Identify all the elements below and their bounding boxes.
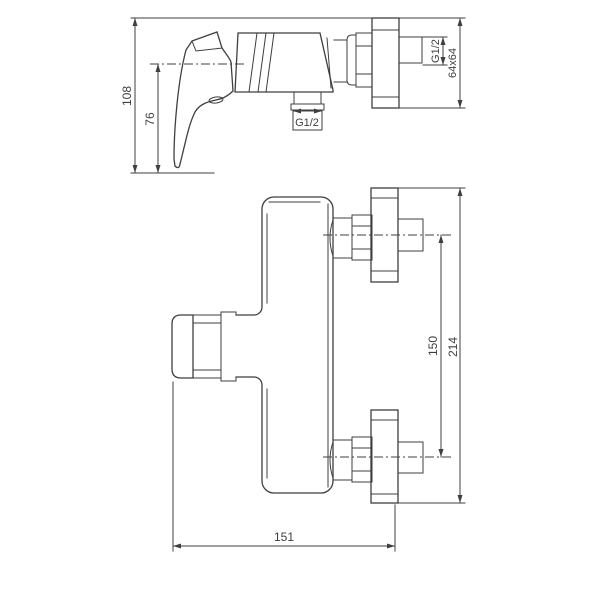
side-union-stub	[334, 40, 347, 82]
dim-76-arrow-up	[156, 64, 161, 72]
dim-150-arrow-up	[439, 235, 444, 243]
outlet-thread-arrow-right	[314, 109, 322, 114]
bottom-outlet-stub	[294, 92, 321, 104]
dim-108-arrow-up	[133, 18, 138, 26]
handle-grip-bevel	[192, 41, 222, 51]
dim-151-label: 151	[274, 530, 294, 544]
top-union-nut	[333, 218, 352, 258]
dim-108: 108	[120, 18, 465, 173]
dim-214-arrow-up	[458, 188, 463, 196]
side-wall-connection	[334, 18, 422, 108]
front-handle-cap	[172, 315, 193, 378]
nipple-thread-label: G1/2	[430, 39, 442, 63]
body-surface-edges	[249, 33, 331, 92]
side-union-cap	[347, 35, 356, 85]
top-hex-nut	[352, 215, 372, 260]
side-wall-flange	[372, 18, 399, 108]
dim-outlet-thread: G1/2	[293, 109, 322, 131]
side-body	[235, 33, 333, 110]
shower-mixer-drawing: 108 76 G1/2 G1/2	[0, 0, 600, 600]
front-bottom-connection	[323, 410, 452, 503]
flange-size-label: 64x64	[447, 48, 459, 78]
dim-nipple-thread: G1/2	[423, 37, 447, 65]
technical-drawing-page: 108 76 G1/2 G1/2	[0, 0, 600, 600]
dim-151-arrow-right	[387, 544, 395, 549]
front-handle-cylinder	[193, 315, 221, 378]
front-view: 150 214 151	[172, 188, 465, 551]
handle-lever-outline	[174, 32, 233, 168]
dim-76-arrow-down	[156, 165, 161, 173]
bottom-hex-nut	[352, 437, 372, 482]
top-flange-chamfers	[371, 198, 398, 271]
dim-150-arrow-down	[439, 449, 444, 457]
flange-arrow-up	[458, 18, 463, 26]
dim-76-label: 76	[143, 112, 157, 126]
side-view: 108 76 G1/2 G1/2	[120, 18, 465, 173]
dim-76: 76	[143, 64, 161, 173]
front-body-outline	[236, 197, 333, 493]
dim-150-label: 150	[426, 336, 440, 356]
side-handle	[174, 32, 233, 168]
bottom-outlet-lip	[291, 104, 324, 110]
outlet-thread-label: G1/2	[295, 117, 319, 129]
bottom-hex-flats	[352, 448, 372, 471]
dim-108-arrow-down	[133, 165, 138, 173]
front-body	[236, 197, 333, 493]
side-nipple	[399, 37, 422, 63]
bottom-wall-flange	[371, 410, 398, 503]
front-handle	[172, 312, 236, 381]
dim-214-label: 214	[446, 337, 460, 357]
dim-150: 150	[426, 235, 444, 457]
bottom-union-nut	[333, 440, 352, 480]
flange-arrow-down	[458, 100, 463, 108]
dim-108-label: 108	[120, 86, 134, 106]
dim-151: 151	[173, 382, 395, 551]
dim-151-arrow-left	[173, 544, 181, 549]
side-flange-chamfers	[372, 30, 399, 97]
side-hex-nut	[356, 33, 372, 87]
front-handle-flare	[221, 312, 236, 381]
dim-214-arrow-down	[458, 495, 463, 503]
front-body-inner-edges	[267, 202, 328, 487]
side-hex-flats	[356, 46, 372, 74]
bottom-nipple	[398, 442, 423, 473]
top-hex-flats	[352, 226, 372, 249]
front-top-connection	[323, 188, 452, 282]
outlet-thread-arrow-left	[293, 109, 301, 114]
